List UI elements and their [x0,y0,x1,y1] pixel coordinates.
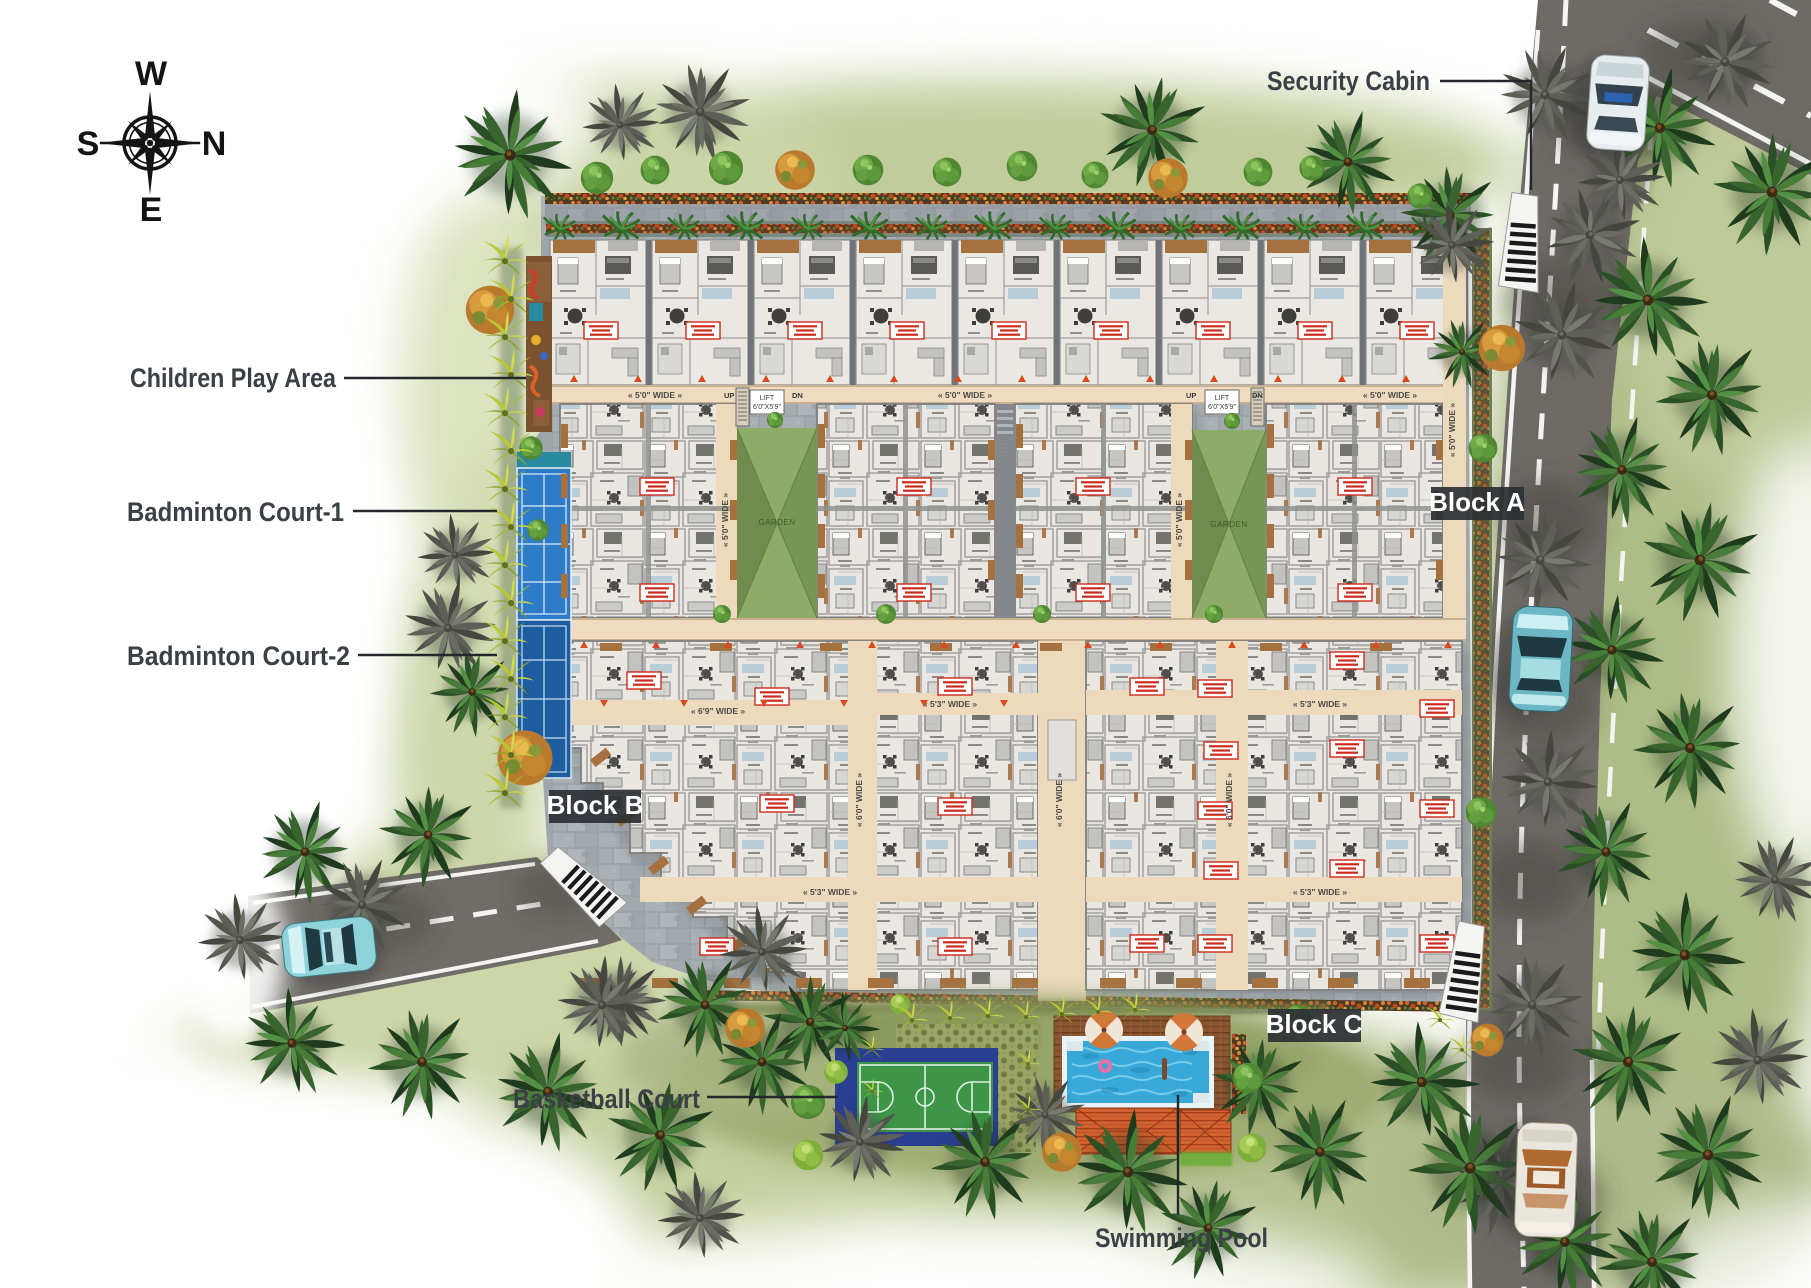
svg-text:« 5'3" WIDE »: « 5'3" WIDE » [1293,699,1348,709]
svg-text:UP: UP [1186,391,1196,400]
svg-text:« 5'0" WIDE »: « 5'0" WIDE » [1174,493,1184,548]
svg-text:Security Cabin: Security Cabin [1267,66,1430,96]
svg-text:« 5'3" WIDE »: « 5'3" WIDE » [1293,887,1348,897]
svg-text:LIFT: LIFT [1215,395,1230,402]
svg-text:N: N [202,125,227,163]
svg-text:Swimming Pool: Swimming Pool [1095,1223,1268,1253]
svg-text:W: W [135,55,168,93]
svg-text:Basketball Court: Basketball Court [513,1084,700,1114]
svg-text:« 6'0" WIDE »: « 6'0" WIDE » [1224,773,1234,828]
svg-text:« 6'9" WIDE »: « 6'9" WIDE » [691,706,746,716]
svg-text:Block B: Block B [547,790,644,820]
svg-text:GARDEN: GARDEN [758,518,795,527]
svg-text:« 6'0" WIDE »: « 6'0" WIDE » [1054,773,1064,828]
svg-text:« 5'0" WIDE »: « 5'0" WIDE » [1363,390,1418,400]
svg-text:6'0"X5'9": 6'0"X5'9" [753,404,781,411]
svg-text:S: S [77,125,100,163]
svg-text:« 5'3" WIDE »: « 5'3" WIDE » [923,699,978,709]
svg-text:« 5'0" WIDE »: « 5'0" WIDE » [628,390,683,400]
svg-text:« 5'0" WIDE »: « 5'0" WIDE » [1447,403,1457,458]
svg-text:UP: UP [724,391,734,400]
svg-text:« 6'0" WIDE »: « 6'0" WIDE » [854,773,864,828]
svg-text:Block C: Block C [1266,1009,1363,1039]
svg-text:6'0"X5'9": 6'0"X5'9" [1208,404,1236,411]
svg-text:DN: DN [1252,391,1263,400]
svg-text:E: E [140,191,163,229]
svg-text:« 5'0" WIDE »: « 5'0" WIDE » [938,390,993,400]
svg-text:DN: DN [792,391,803,400]
svg-text:Badminton Court-2: Badminton Court-2 [127,641,350,671]
svg-text:« 5'3" WIDE »: « 5'3" WIDE » [803,887,858,897]
svg-text:LIFT: LIFT [760,395,775,402]
svg-text:Badminton Court-1: Badminton Court-1 [127,497,344,527]
svg-text:« 5'0" WIDE »: « 5'0" WIDE » [720,493,730,548]
svg-text:GARDEN: GARDEN [1210,520,1247,529]
svg-text:Children Play Area: Children Play Area [130,363,337,393]
svg-text:Block A: Block A [1429,487,1525,517]
